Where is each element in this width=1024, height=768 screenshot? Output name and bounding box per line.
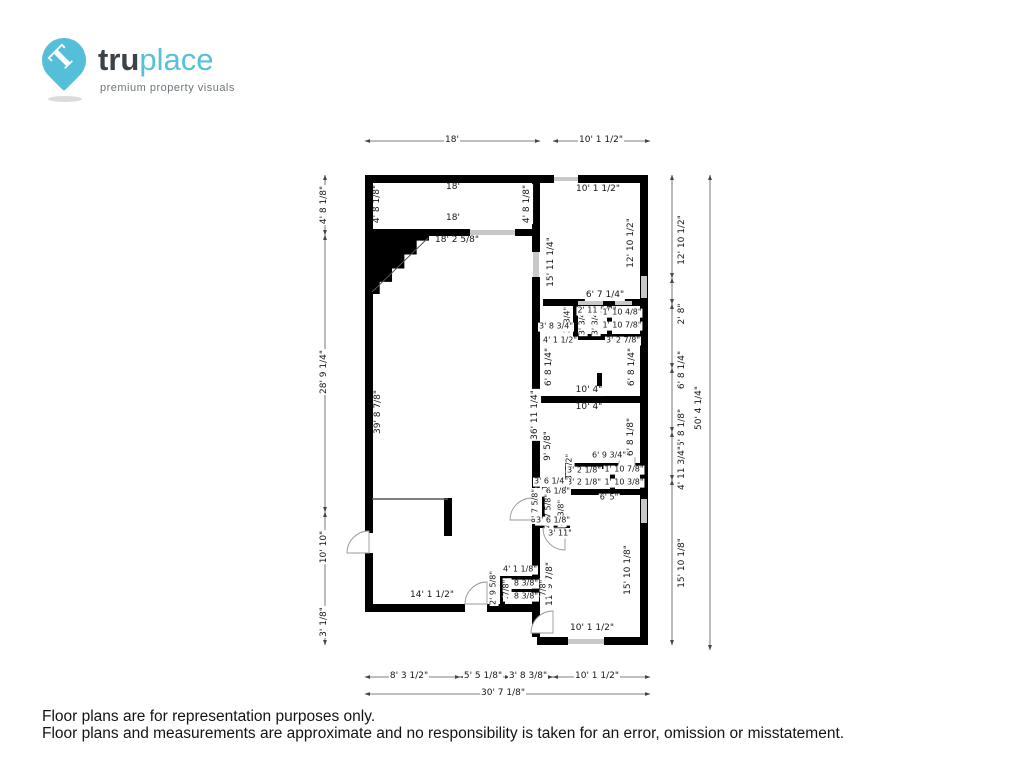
dimension-label: 12' 10 1/2" (678, 214, 688, 266)
dimension-label: 3' 1/8" (320, 606, 330, 638)
dimension-label: 9' 5/8" (544, 430, 554, 462)
dimension-label: 2' 8" (678, 303, 688, 326)
dimension-label: 10' 4" (575, 386, 604, 396)
dimension-label: 5' 5 1/8" (463, 672, 503, 682)
floor-plan: 18'10' 1 1/2"4' 8 1/8"28' 9 1/4"10' 10"3… (0, 0, 1024, 768)
dimension-label: 3' 2 7/8" (605, 337, 641, 346)
dimension-label: 4' 8 1/8" (373, 184, 383, 224)
dimension-label: 1' 10 7/8" (603, 466, 644, 475)
dimension-label: 12' 10 1/2" (627, 217, 637, 269)
dimension-label: 2' 9 5/8" (490, 570, 499, 606)
dimension-label: 50' 4 1/4" (695, 385, 705, 431)
dimension-label: 18' (445, 183, 461, 193)
dimension-label: 10' 1 1/2" (578, 136, 624, 146)
dimension-label: 1' 10 3/8" (603, 479, 644, 488)
dimension-label: 28' 9 1/4" (320, 349, 330, 395)
dimension-label: 10' 4" (575, 403, 604, 413)
door-arc (510, 498, 532, 520)
dimension-label: 10' 1 1/2" (574, 672, 620, 682)
dimension-label: 4' 8 1/8" (320, 185, 330, 225)
dimension-label: 3' 2 1/8" (566, 479, 602, 488)
dimension-label: 7/8" (503, 579, 512, 598)
dimension-label: 6' 8 1/4" (545, 347, 555, 387)
dimension-label: 15' 10 1/8" (678, 537, 688, 589)
dimension-label: 3' 6 1/8" (535, 517, 571, 526)
dimension-label: 7/8" (540, 579, 549, 598)
door-arc (465, 582, 487, 604)
dimension-label: 4' 11 3/4" (678, 445, 688, 491)
dimension-label: 10' 1 1/2" (575, 185, 621, 195)
dimension-label: 4' 1 1/8" (502, 566, 538, 575)
dimension-label: 3' 11" (547, 530, 573, 539)
dimension-label: 14' 1 1/2" (409, 591, 455, 601)
dimension-label: 18' (445, 214, 461, 224)
plan-annotations (0, 0, 1024, 768)
dimension-label: 15' 11 1/4" (547, 236, 557, 288)
interior-lines (372, 238, 448, 499)
dimension-label: 18' 2 5/8" (434, 236, 480, 246)
dimension-label: 6' 8 1/8" (627, 417, 637, 457)
dimension-label: 3' 8 3/8" (508, 672, 548, 682)
dimension-label: 3' 2 1/8" (566, 467, 602, 476)
dimension-label: 15' 10 1/8" (624, 544, 634, 596)
dimension-label: 6' 5" (599, 494, 620, 503)
dimension-label: 6' 8 1/4" (628, 347, 638, 387)
dimension-label: 10' 1 1/2" (569, 624, 615, 634)
dimension-label: 4' 1 1/2" (542, 337, 578, 346)
dimension-label: 3' 8 3/4" (538, 323, 574, 332)
dimension-label: 6' 8 1/4" (678, 350, 688, 390)
dimension-label: 10' 10" (320, 530, 330, 564)
dimension-label: 6' 8 1/8" (678, 408, 688, 448)
dimension-label: 30' 7 1/8" (480, 689, 526, 699)
stair-diagonal-line (372, 238, 428, 292)
dimension-label: 18' (444, 136, 460, 146)
disclaimer-line-1: Floor plans are for representation purpo… (42, 708, 844, 725)
dimension-label: 6' 7 1/4" (585, 291, 625, 301)
dimension-label: 39' 8 7/8" (374, 389, 384, 435)
dimension-label: 1' 10 7/8" (601, 322, 642, 331)
door-arc (347, 531, 369, 553)
dimension-label: 6' 9 3/4" (591, 452, 627, 461)
disclaimer-line-2: Floor plans and measurements are approxi… (42, 725, 844, 742)
dimension-label: 8' 3 1/2" (389, 672, 429, 682)
door-arc (531, 611, 553, 633)
dimension-label: 4' 8 1/8" (523, 184, 533, 224)
dimension-label: 3' 6 1/4" (533, 478, 569, 487)
dimension-label: 1' 10 4/8" (601, 309, 642, 318)
disclaimer: Floor plans are for representation purpo… (42, 708, 844, 743)
dimension-label: 36' 11 1/4" (531, 389, 541, 441)
